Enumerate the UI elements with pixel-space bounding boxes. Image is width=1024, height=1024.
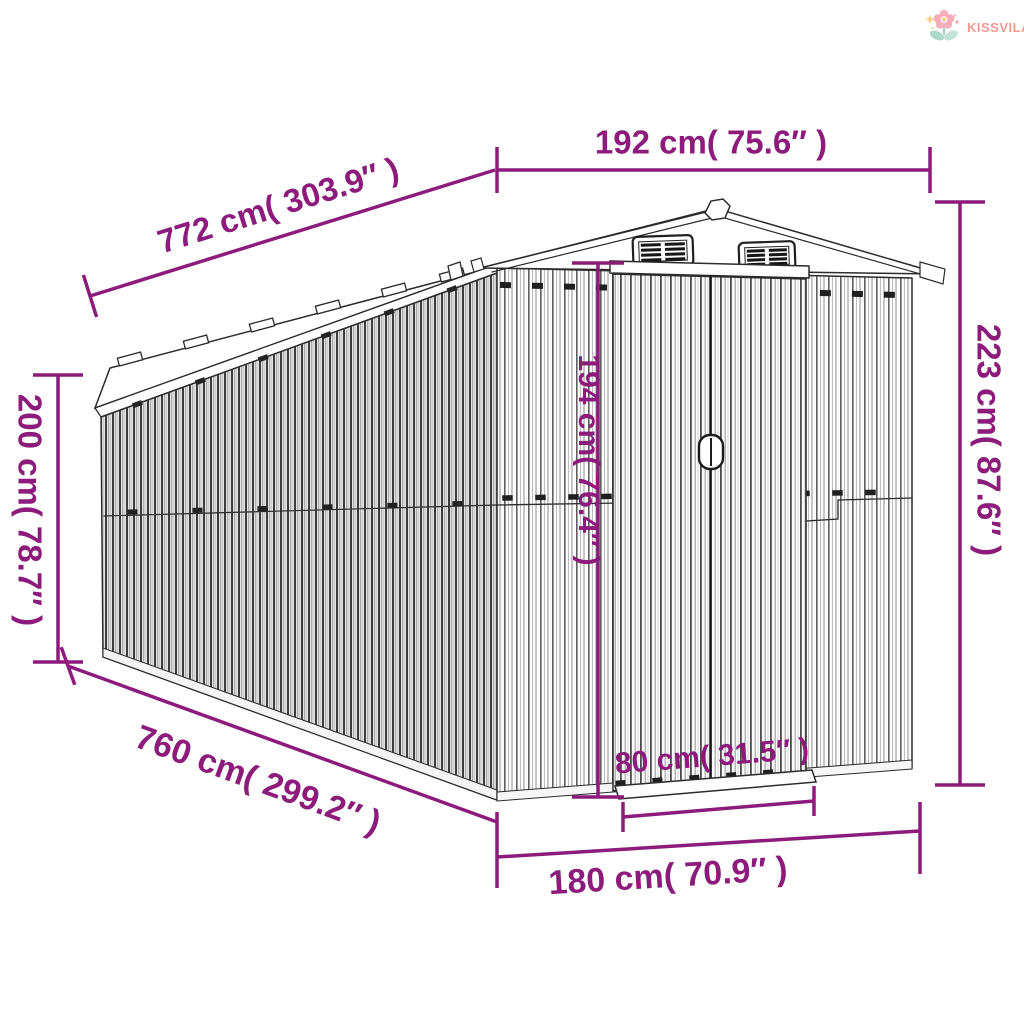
flower-logo-icon	[924, 8, 964, 46]
brand-logo: KISSVILÁG	[924, 8, 1024, 46]
gutter-right-end	[920, 262, 945, 284]
rake-left-tip	[471, 258, 484, 272]
apex-finial	[705, 199, 730, 220]
product-dimension-image: 192 cm( 75.6″ ) 772 cm( 303.9″ ) 200 cm(…	[0, 0, 1024, 1024]
dim-label-front-width: 192 cm( 75.6″ )	[595, 126, 827, 159]
shed-diagram-svg	[0, 0, 1024, 1024]
shed-drawing	[95, 199, 945, 801]
brand-name: KISSVILÁG	[967, 20, 1024, 35]
dim-label-door-height: 194 cm( 76.4″ )	[573, 354, 603, 565]
dim-label-total-height: 223 cm( 87.6″ )	[973, 324, 1006, 556]
door-handle	[699, 435, 723, 469]
dim-label-wall-height: 200 cm( 78.7″ )	[14, 394, 47, 626]
